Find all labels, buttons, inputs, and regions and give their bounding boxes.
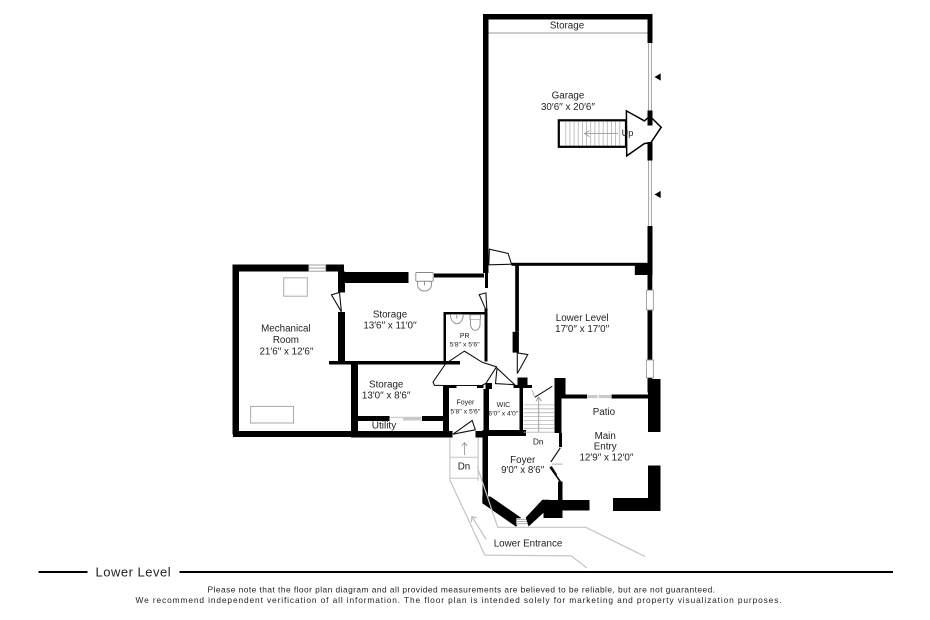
svg-text:13′0′′ x 8′6′′: 13′0′′ x 8′6′′: [362, 391, 411, 402]
svg-text:12′9′′ x 12′0′′: 12′9′′ x 12′0′′: [579, 453, 633, 464]
svg-text:17′0′′ x 17′0′′: 17′0′′ x 17′0′′: [555, 324, 609, 335]
svg-text:Lower Level: Lower Level: [95, 564, 171, 579]
svg-text:WIC: WIC: [497, 402, 511, 409]
svg-text:Storage: Storage: [373, 310, 408, 321]
svg-text:Dn: Dn: [533, 436, 544, 446]
svg-text:PR: PR: [460, 333, 470, 340]
svg-text:5′8′′ x 5′6′′: 5′8′′ x 5′6′′: [450, 409, 481, 416]
svg-text:6′0′′ x 4′0′′: 6′0′′ x 4′0′′: [488, 410, 519, 417]
svg-text:Up: Up: [622, 128, 634, 138]
svg-text:30′6′′ x 20′6′′: 30′6′′ x 20′6′′: [541, 102, 595, 113]
svg-text:Dn: Dn: [458, 462, 471, 473]
svg-text:We recommend independent verif: We recommend independent verification of…: [136, 595, 783, 605]
svg-text:Patio: Patio: [593, 407, 616, 418]
svg-text:9′0′′ x 8′6′′: 9′0′′ x 8′6′′: [501, 465, 544, 476]
svg-text:Room: Room: [273, 335, 299, 346]
svg-text:Storage: Storage: [369, 380, 404, 391]
svg-text:Garage: Garage: [552, 90, 585, 101]
svg-text:5′8′′ x 5′6′′: 5′8′′ x 5′6′′: [450, 341, 481, 348]
svg-text:Storage: Storage: [550, 21, 585, 32]
svg-text:Mechanical: Mechanical: [261, 324, 311, 335]
svg-text:Foyer: Foyer: [456, 400, 475, 407]
svg-text:Lower Level: Lower Level: [556, 313, 609, 324]
svg-text:Utility: Utility: [372, 421, 396, 432]
svg-text:Main: Main: [595, 431, 616, 442]
svg-text:Entry: Entry: [594, 442, 617, 453]
svg-text:21′6′′ x 12′6′′: 21′6′′ x 12′6′′: [259, 347, 313, 358]
svg-text:Lower Entrance: Lower Entrance: [494, 539, 563, 550]
svg-text:13′6′′ x 11′0′′: 13′6′′ x 11′0′′: [363, 321, 416, 332]
svg-text:Please note that the floor pla: Please note that the floor plan diagram …: [208, 585, 716, 595]
